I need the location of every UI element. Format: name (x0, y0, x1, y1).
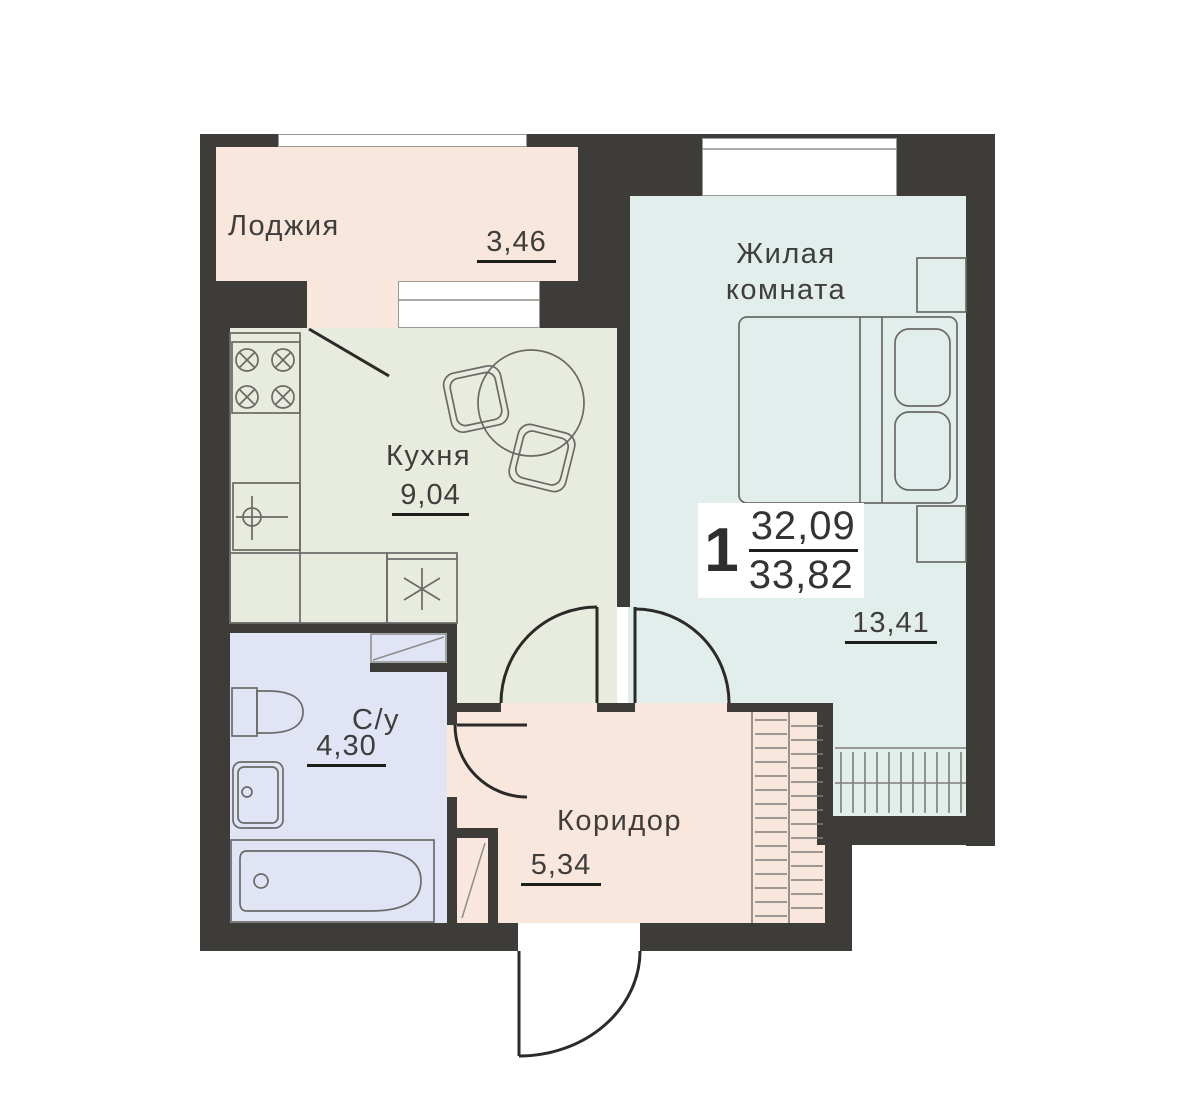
bathroom-door (455, 725, 527, 797)
living-room-door (635, 607, 729, 703)
duct-shaft (462, 843, 485, 918)
bathroom-area: 4,30 (307, 732, 386, 767)
corridor-label: Коридор (557, 803, 682, 839)
dining-table (478, 350, 584, 456)
entrance-door (519, 951, 640, 1056)
kitchen-counter (230, 333, 387, 623)
plan-overlay (0, 0, 1181, 1098)
total-area-value: 33,82 (749, 552, 858, 596)
nightstand (917, 258, 966, 312)
kitchen-area: 9,04 (392, 481, 469, 516)
nightstand (917, 506, 966, 562)
kitchen-sink (233, 483, 300, 550)
floor-plan: Лоджия 3,46 Кухня 9,04 Жилая комната 13,… (0, 0, 1181, 1098)
bed (739, 317, 957, 503)
counter-bottom (230, 553, 387, 623)
corridor-area: 5,34 (521, 851, 601, 886)
chair (507, 422, 578, 494)
apartment-summary: 1 32,09 33,82 (698, 503, 864, 598)
rooms-count: 1 (704, 523, 738, 579)
vent-shaft (371, 634, 446, 662)
toilet (232, 688, 303, 736)
living-area-value: 32,09 (749, 505, 858, 552)
loggia-area: 3,46 (477, 228, 556, 263)
loggia-label: Лоджия (228, 208, 340, 244)
chair (441, 364, 510, 435)
balcony-door (309, 329, 389, 376)
counter-left (230, 333, 300, 623)
refrigerator (387, 553, 457, 623)
living-room-label: Жилая комната (701, 236, 871, 309)
kitchen-door (501, 607, 597, 703)
snowflake-icon (404, 568, 440, 610)
bathtub (231, 840, 434, 922)
kitchen-label: Кухня (386, 438, 471, 474)
living-wardrobe (835, 748, 966, 813)
pillow (895, 412, 950, 490)
corridor-wardrobe (752, 712, 823, 923)
pillow (895, 329, 950, 406)
burner-icon (236, 349, 294, 408)
stove (232, 342, 300, 413)
washbasin (233, 762, 283, 828)
living-room-area: 13,41 (845, 609, 937, 644)
area-fraction: 32,09 33,82 (749, 505, 858, 596)
